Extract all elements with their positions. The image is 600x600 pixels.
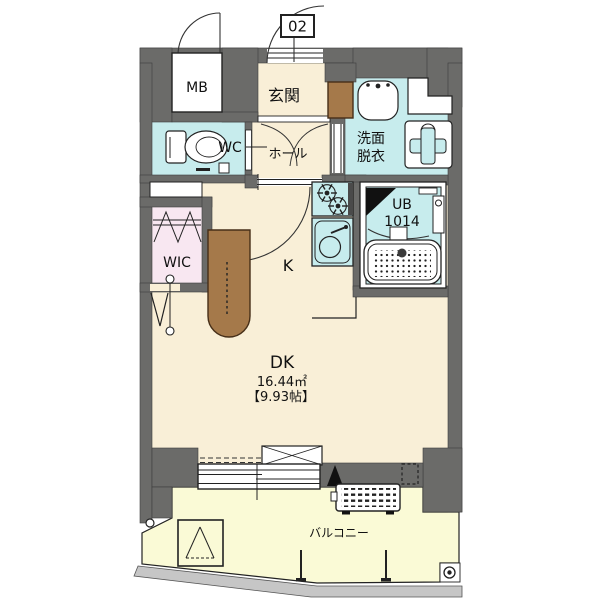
ac-outdoor-unit bbox=[331, 484, 400, 515]
bathtub-icon bbox=[364, 240, 441, 284]
wall-genkan-right bbox=[325, 63, 356, 82]
wall-bottom-right-block bbox=[423, 448, 462, 512]
wall-left-step bbox=[152, 487, 172, 518]
wc-floor-mark bbox=[196, 168, 210, 171]
dk-area-tatami: 【9.93帖】 bbox=[247, 390, 315, 405]
shelf-below-wc bbox=[150, 182, 202, 197]
floor-plan: 02 MB 玄関 WC ホール 洗面 脱衣 UB 1014 WIC K DK 1… bbox=[0, 0, 600, 600]
room-label-ub-size: 1014 bbox=[384, 214, 420, 230]
room-label-senmen-1: 洗面 bbox=[357, 131, 385, 147]
genkan-hall-opening bbox=[258, 116, 330, 122]
wic-door-opening bbox=[150, 284, 180, 291]
room-label-wic: WIC bbox=[163, 255, 191, 271]
wall-hall-stub-left bbox=[245, 175, 258, 188]
genkan-shoe-cabinet bbox=[328, 82, 353, 118]
stove-icon bbox=[312, 182, 353, 216]
entrance-opening bbox=[267, 49, 323, 63]
room-label-balcony: バルコニー bbox=[309, 526, 369, 540]
room-label-hall: ホール bbox=[268, 147, 307, 162]
room-label-ub: UB bbox=[392, 197, 412, 213]
ub-shower-column bbox=[433, 196, 444, 233]
balcony-drain-right bbox=[440, 563, 460, 582]
kitchen-counter bbox=[208, 230, 250, 337]
room-label-dk: DK bbox=[270, 353, 295, 373]
wc-door bbox=[246, 130, 252, 170]
ac-indoor-box bbox=[262, 446, 322, 465]
room-label-kitchen: K bbox=[283, 256, 294, 275]
ub-mirror bbox=[419, 188, 437, 194]
washing-machine-pan-icon bbox=[405, 121, 452, 168]
floor-plan-page: 02 MB 玄関 WC ホール 洗面 脱衣 UB 1014 WIC K DK 1… bbox=[0, 0, 600, 600]
unit-number-label: 02 bbox=[288, 18, 307, 36]
wall-window-pier bbox=[152, 448, 198, 487]
dk-area-m2: 16.44㎡ bbox=[257, 375, 307, 390]
room-label-genkan: 玄関 bbox=[268, 86, 300, 105]
room-label-senmen-2: 脱衣 bbox=[357, 149, 385, 165]
wall-left bbox=[140, 63, 152, 523]
kitchen-sink-icon bbox=[312, 218, 353, 266]
room-label-wc: WC bbox=[218, 140, 242, 156]
wall-below-mb bbox=[172, 112, 258, 122]
wall-above-wic bbox=[140, 197, 212, 207]
balcony-drain-left bbox=[146, 519, 154, 527]
room-label-mb: MB bbox=[186, 80, 208, 96]
room-wic-floor bbox=[152, 205, 202, 290]
wc-floor-box bbox=[219, 163, 229, 173]
wall-mb-right bbox=[222, 48, 258, 122]
washbasin-icon bbox=[358, 81, 398, 120]
